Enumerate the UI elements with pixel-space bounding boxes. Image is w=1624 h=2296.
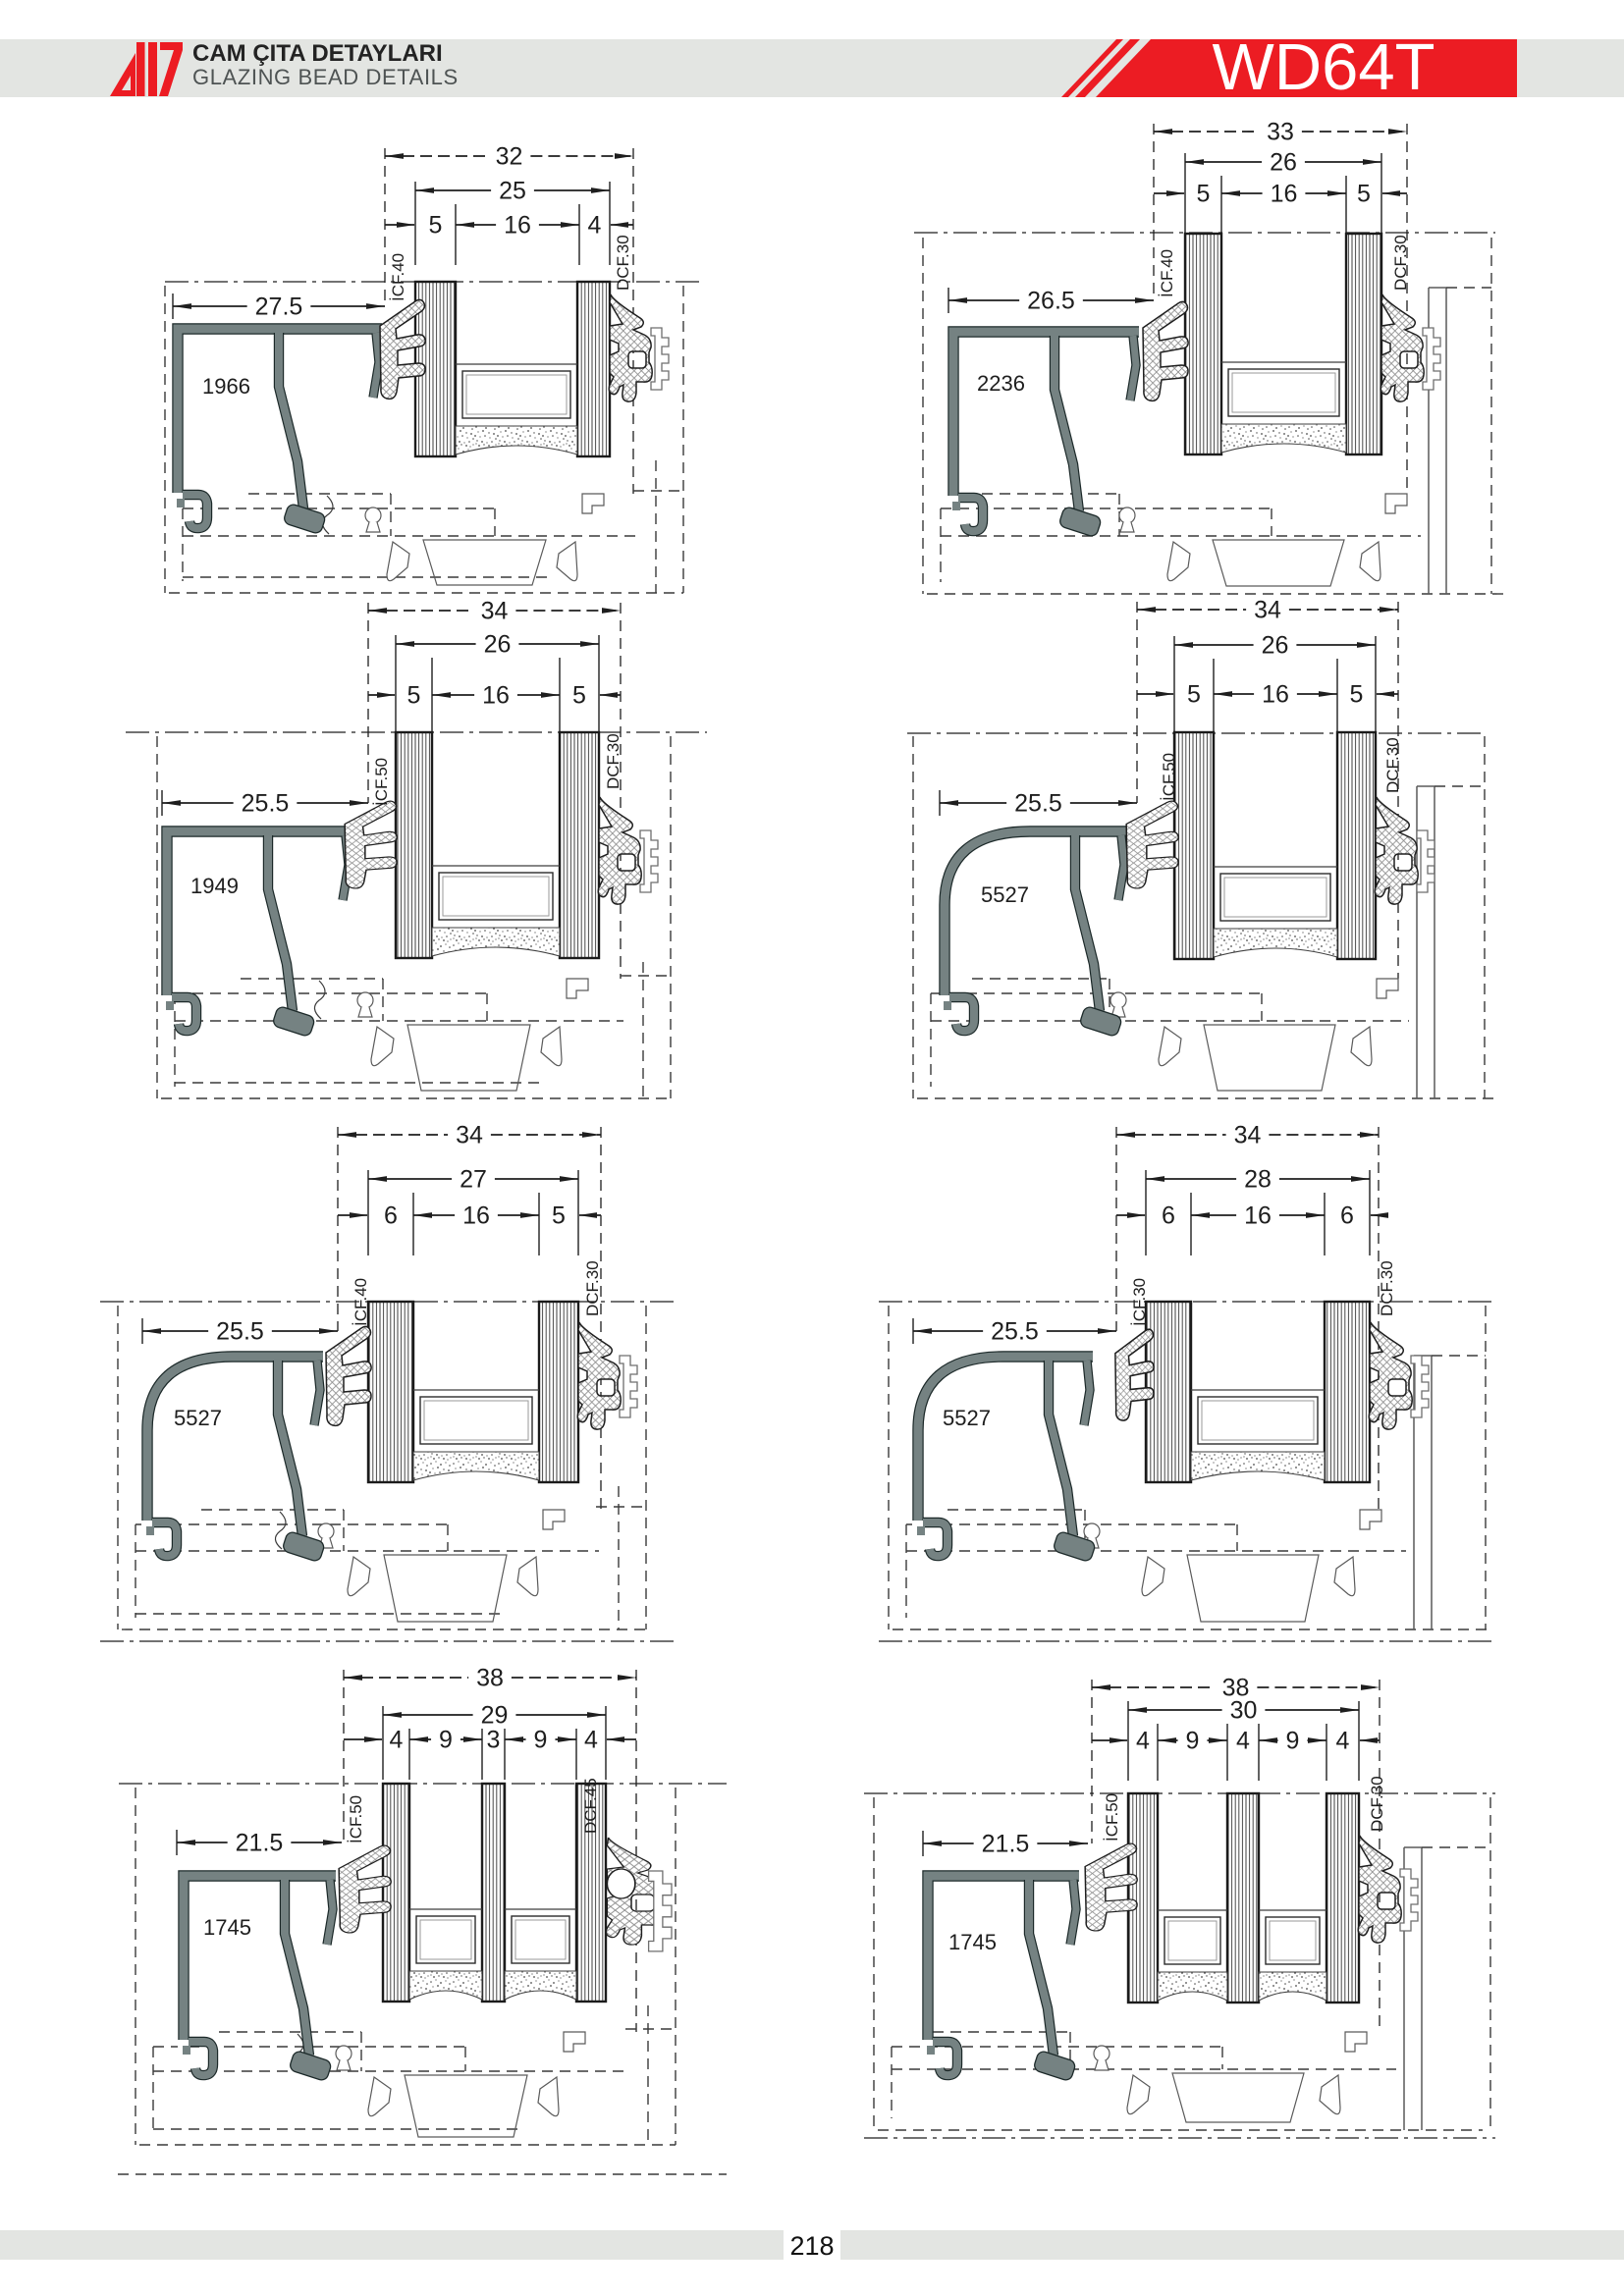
svg-text:4: 4 (1136, 1728, 1150, 1755)
svg-text:CAM ÇITA DETAYLARI: CAM ÇITA DETAYLARI (192, 40, 443, 67)
svg-text:DCF.30: DCF.30 (1391, 235, 1410, 291)
svg-text:16: 16 (1244, 1202, 1272, 1230)
svg-text:1745: 1745 (203, 1915, 251, 1940)
svg-text:16: 16 (462, 1202, 490, 1230)
svg-text:5: 5 (407, 682, 421, 710)
svg-text:34: 34 (481, 598, 509, 625)
svg-text:27: 27 (460, 1166, 487, 1194)
svg-text:5527: 5527 (981, 882, 1029, 907)
svg-text:21.5: 21.5 (982, 1831, 1030, 1858)
svg-text:DCF.30: DCF.30 (1368, 1776, 1386, 1832)
svg-text:16: 16 (482, 682, 510, 710)
svg-text:3: 3 (487, 1727, 501, 1754)
svg-text:26.5: 26.5 (1027, 288, 1075, 315)
svg-text:WD64T: WD64T (1212, 30, 1435, 104)
svg-text:İCF.40: İCF.40 (389, 253, 407, 301)
svg-text:25.5: 25.5 (216, 1318, 264, 1346)
svg-text:5: 5 (572, 682, 586, 710)
svg-text:29: 29 (481, 1702, 509, 1730)
svg-text:34: 34 (1234, 1122, 1262, 1149)
svg-text:5527: 5527 (174, 1406, 222, 1430)
svg-text:İCF.50: İCF.50 (372, 758, 391, 806)
svg-text:25.5: 25.5 (242, 790, 290, 818)
svg-text:DCF.45: DCF.45 (581, 1778, 600, 1834)
svg-text:34: 34 (1254, 597, 1281, 624)
svg-text:İCF.40: İCF.40 (352, 1278, 370, 1326)
svg-text:5: 5 (1357, 181, 1371, 208)
svg-text:DCF.30: DCF.30 (1378, 1260, 1396, 1316)
svg-text:27.5: 27.5 (255, 294, 303, 321)
svg-text:5527: 5527 (943, 1406, 991, 1430)
svg-text:DCF.30: DCF.30 (1383, 737, 1402, 793)
svg-text:6: 6 (1340, 1202, 1354, 1230)
svg-text:33: 33 (1267, 119, 1294, 146)
svg-text:16: 16 (504, 212, 531, 240)
svg-text:6: 6 (384, 1202, 398, 1230)
svg-text:38: 38 (476, 1665, 504, 1692)
svg-text:9: 9 (439, 1727, 453, 1754)
svg-text:218: 218 (789, 2231, 834, 2261)
svg-text:5: 5 (1187, 681, 1201, 709)
svg-text:25.5: 25.5 (1014, 790, 1062, 818)
svg-text:26: 26 (1270, 149, 1297, 177)
svg-text:İCF.30: İCF.30 (1130, 1278, 1149, 1326)
svg-text:26: 26 (1262, 632, 1289, 660)
svg-text:21.5: 21.5 (236, 1830, 284, 1857)
svg-text:5: 5 (552, 1202, 566, 1230)
svg-text:4: 4 (1336, 1728, 1350, 1755)
svg-text:5: 5 (1350, 681, 1364, 709)
svg-text:9: 9 (1186, 1728, 1200, 1755)
svg-text:4: 4 (1236, 1728, 1250, 1755)
svg-text:16: 16 (1271, 181, 1298, 208)
svg-text:28: 28 (1244, 1166, 1272, 1194)
svg-text:34: 34 (456, 1122, 483, 1149)
svg-text:DCF.30: DCF.30 (614, 235, 632, 291)
svg-text:4: 4 (390, 1727, 404, 1754)
svg-text:İCF.50: İCF.50 (347, 1795, 365, 1843)
svg-text:İCF.40: İCF.40 (1158, 249, 1176, 297)
svg-text:4: 4 (584, 1727, 598, 1754)
svg-text:GLAZING BEAD DETAILS: GLAZING BEAD DETAILS (192, 65, 459, 89)
svg-text:İCF.50: İCF.50 (1103, 1793, 1121, 1842)
svg-text:32: 32 (496, 143, 523, 171)
svg-text:1745: 1745 (948, 1930, 997, 1954)
svg-text:DCF.30: DCF.30 (583, 1260, 602, 1316)
svg-text:DCF.30: DCF.30 (604, 733, 623, 789)
svg-text:25: 25 (499, 178, 526, 205)
svg-text:5: 5 (429, 212, 443, 240)
svg-text:1949: 1949 (190, 874, 239, 898)
svg-text:26: 26 (484, 631, 512, 659)
svg-text:30: 30 (1230, 1697, 1258, 1725)
svg-text:25.5: 25.5 (991, 1318, 1039, 1346)
svg-text:9: 9 (534, 1727, 548, 1754)
svg-text:1966: 1966 (202, 374, 250, 399)
svg-text:16: 16 (1262, 681, 1289, 709)
svg-text:9: 9 (1286, 1728, 1300, 1755)
svg-text:4: 4 (588, 212, 602, 240)
svg-text:5: 5 (1197, 181, 1211, 208)
svg-text:2236: 2236 (977, 371, 1025, 396)
svg-text:6: 6 (1162, 1202, 1175, 1230)
svg-text:İCF.50: İCF.50 (1160, 753, 1178, 801)
